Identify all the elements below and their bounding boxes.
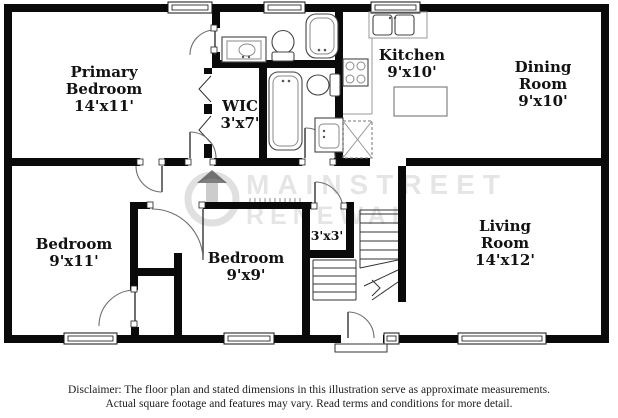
primary-bedroom-door <box>190 132 216 158</box>
primary-bathroom <box>222 14 338 62</box>
stove-icon <box>343 59 368 86</box>
room-label-hall-closet: 3'x3' <box>302 229 352 243</box>
room-dims: 9'x11' <box>32 253 116 270</box>
room-dims: 9'x10' <box>370 64 454 81</box>
bathtub-icon <box>306 14 338 58</box>
disclaimer-line-2: Actual square footage and features may v… <box>0 397 618 411</box>
room-dims: 3'x3' <box>302 229 352 243</box>
kitchen-fixtures <box>343 12 447 158</box>
logo-pin-icon <box>206 183 218 204</box>
room-label-primary-bedroom: Primary Bedroom 14'x11' <box>60 64 148 114</box>
room-label-living-room: Living Room 14'x12' <box>473 218 537 268</box>
disclaimer-line-1: Disclaimer: The floor plan and stated di… <box>0 383 618 397</box>
closet-door <box>99 290 135 326</box>
room-label-wic: WIC 3'x7' <box>205 98 275 132</box>
kitchen-island <box>394 87 447 116</box>
window <box>264 2 305 13</box>
entry-sidelite-window <box>384 333 399 344</box>
bedroom-door <box>136 166 162 192</box>
room-name: Bedroom <box>208 249 285 267</box>
room-name: Dining Room <box>515 58 572 93</box>
hall-bathroom <box>269 72 343 152</box>
room-name: Living Room <box>479 217 531 252</box>
room-label-kitchen: Kitchen 9'x10' <box>370 47 454 81</box>
dishwasher-icon <box>343 121 372 158</box>
entry-stoop <box>335 344 387 352</box>
watermark-brand: MAINSTREET <box>246 169 508 200</box>
front-entry <box>335 312 387 352</box>
toilet-icon <box>307 74 340 96</box>
window <box>168 2 212 13</box>
vanity-sink-icon <box>222 37 266 62</box>
living-room-window <box>458 333 546 344</box>
watermark-logo <box>188 170 236 223</box>
vanity-sink-icon <box>315 118 343 152</box>
room-label-dining-room: Dining Room 9'x10' <box>511 59 575 109</box>
kitchen-sink-icon <box>373 15 414 35</box>
room-name: Kitchen <box>379 46 445 64</box>
room-dims: 14'x11' <box>60 97 148 114</box>
floor-plan-page: MAINSTREET RENEWAL <box>0 0 618 418</box>
disclaimer: Disclaimer: The floor plan and stated di… <box>0 383 618 411</box>
room-label-bedroom-middle: Bedroom 9'x9' <box>204 250 288 284</box>
room-dims: 3'x7' <box>205 115 275 132</box>
kitchen-window <box>371 2 420 13</box>
room-dims: 14'x12' <box>473 251 537 268</box>
window <box>224 333 274 344</box>
room-dims: 9'x10' <box>511 92 575 109</box>
room-name: WIC <box>222 97 258 115</box>
toilet-icon <box>272 31 294 62</box>
room-dims: 9'x9' <box>204 267 288 284</box>
room-name: Bedroom <box>36 235 113 253</box>
window <box>64 333 117 344</box>
room-name: Primary Bedroom <box>66 63 143 98</box>
room-label-bedroom-left: Bedroom 9'x11' <box>32 236 116 270</box>
